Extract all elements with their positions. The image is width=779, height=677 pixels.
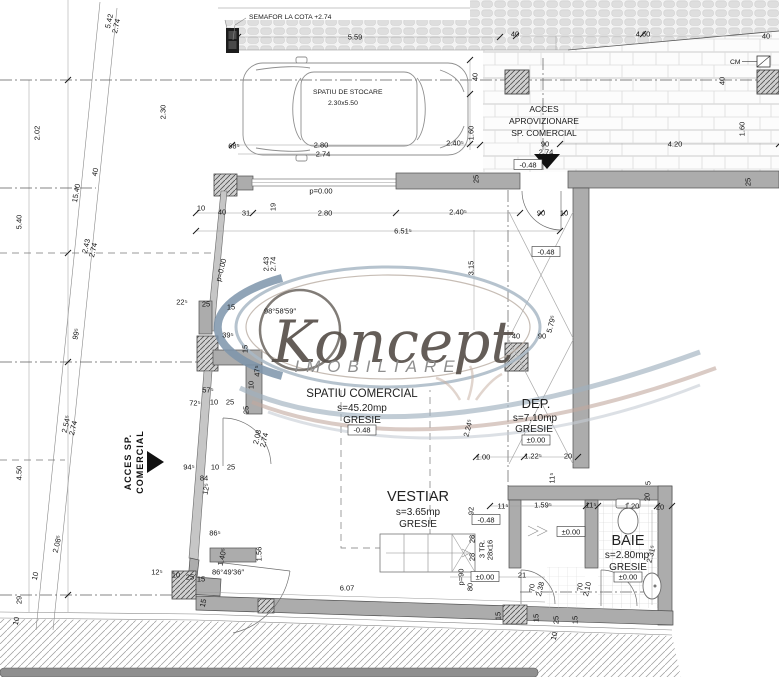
svg-text:25: 25 <box>744 178 753 186</box>
dimension-label: 20 <box>643 493 652 501</box>
svg-text:20: 20 <box>656 503 664 512</box>
dimension-label: 1.00 <box>476 453 491 462</box>
svg-text:20: 20 <box>643 493 652 501</box>
floor-plan-page: Koncept IMOBILIARE SPATIU COMERCIAL s=45… <box>0 0 779 677</box>
svg-text:94⁵: 94⁵ <box>183 463 194 472</box>
svg-text:25: 25 <box>202 300 210 309</box>
svg-text:12⁵: 12⁵ <box>151 568 162 577</box>
level-marker: -0.48 <box>514 160 542 170</box>
svg-text:11⁵: 11⁵ <box>586 501 597 510</box>
dimension-label: 1.60 <box>738 122 747 137</box>
svg-text:86°49′36″: 86°49′36″ <box>212 568 244 577</box>
svg-text:2.24⁵: 2.24⁵ <box>461 418 474 437</box>
svg-text:98°58′59″: 98°58′59″ <box>264 307 296 316</box>
baie-left-wall <box>585 500 598 568</box>
dimension-label: 10 <box>211 463 219 472</box>
dimension-label: 86°49′36″ <box>212 568 244 577</box>
dimension-label: 4.50 <box>15 466 24 481</box>
dimension-label: 10 <box>30 571 41 581</box>
dimension-label: 2.10 <box>581 581 593 597</box>
svg-text:-0.48: -0.48 <box>519 161 536 170</box>
svg-text:1.20: 1.20 <box>625 502 640 511</box>
supply-access-line1: ACCES <box>529 104 559 114</box>
room-name: BAIE <box>611 533 644 549</box>
svg-text:10: 10 <box>210 398 218 407</box>
room-finish: GRESIE <box>515 424 553 435</box>
svg-text:2.80: 2.80 <box>318 209 333 218</box>
dimension-label: 2.74 <box>316 150 331 159</box>
svg-text:25: 25 <box>552 616 561 624</box>
semafor-label: SEMAFOR LA COTA +2.74 <box>249 14 332 21</box>
floor-plan-drawing: Koncept IMOBILIARE SPATIU COMERCIAL s=45… <box>0 0 779 677</box>
room-area: s=7.10mp <box>513 413 558 424</box>
svg-text:10: 10 <box>197 204 205 213</box>
dimension-label: 15 <box>494 612 503 620</box>
svg-text:10: 10 <box>211 463 219 472</box>
road-band <box>0 668 538 677</box>
svg-text:25: 25 <box>242 406 251 414</box>
dimension-label: 5.40 <box>15 215 24 230</box>
dimension-label: 25 <box>472 175 481 183</box>
svg-text:57⁵: 57⁵ <box>202 386 213 395</box>
stairs <box>380 534 475 572</box>
dimension-label: 2.74 <box>269 257 278 272</box>
svg-text:47⁵: 47⁵ <box>253 365 262 376</box>
svg-text:92: 92 <box>467 507 476 515</box>
dimension-label: 99⁵ <box>70 327 81 340</box>
dimension-label: 25 <box>202 300 210 309</box>
svg-text:6.51⁵: 6.51⁵ <box>394 227 412 236</box>
svg-text:5.40: 5.40 <box>15 215 24 230</box>
svg-text:20: 20 <box>564 452 572 461</box>
level-marker: -0.48 <box>472 515 500 525</box>
dimension-label: 40 <box>718 77 727 85</box>
svg-text:10: 10 <box>30 571 41 581</box>
svg-text:12⁵: 12⁵ <box>200 482 211 495</box>
shop-access-annotation: ACCES SP. COMERCIAL <box>123 430 164 494</box>
paved-column-left <box>505 70 529 94</box>
svg-text:21: 21 <box>518 571 526 580</box>
slope-arrow <box>528 526 547 536</box>
svg-text:40: 40 <box>718 77 727 85</box>
watermark: Koncept IMOBILIARE <box>218 267 716 438</box>
dimension-label: 15 <box>532 614 541 622</box>
room-finish: GRESIE <box>399 519 437 530</box>
svg-text:25: 25 <box>226 398 234 407</box>
meter-label: CM <box>730 59 741 66</box>
dimension-label: 80 <box>466 583 475 591</box>
svg-text:2.74: 2.74 <box>87 242 99 258</box>
dimension-label: 15 <box>227 303 235 312</box>
dimension-label: 40 <box>218 208 226 217</box>
room-area: s=2.80mp <box>605 550 650 561</box>
dimension-label: 4.60 <box>636 30 651 39</box>
svg-text:15: 15 <box>197 575 205 584</box>
svg-text:-0.48: -0.48 <box>537 248 554 257</box>
svg-text:72⁵: 72⁵ <box>189 399 200 408</box>
svg-text:2.74: 2.74 <box>269 257 278 272</box>
svg-text:2.74: 2.74 <box>67 420 79 436</box>
dimension-label: 2.08⁵ <box>51 534 64 553</box>
bottom-wall-column-1 <box>258 599 274 613</box>
dimension-label: 2.80 <box>314 141 329 150</box>
svg-text:3.15: 3.15 <box>467 261 476 276</box>
dimension-label: 10 <box>172 571 180 580</box>
dimension-label: 4.20 <box>668 140 683 149</box>
dimension-label: 98°58′59″ <box>264 307 296 316</box>
svg-text:2.02: 2.02 <box>33 126 42 141</box>
svg-text:80: 80 <box>466 583 475 591</box>
dimension-label: 2.80 <box>318 209 333 218</box>
room-finish: GRESIE <box>343 415 381 426</box>
dimension-label: 2.02 <box>33 126 42 141</box>
dimension-label: 2.30 <box>159 105 168 120</box>
svg-text:2.10: 2.10 <box>581 581 593 597</box>
paved-column-right <box>757 70 779 94</box>
svg-text:84: 84 <box>200 474 208 483</box>
svg-text:p=90: p=90 <box>457 569 466 586</box>
dimension-label: 84 <box>200 474 208 483</box>
svg-text:15.40: 15.40 <box>70 183 82 203</box>
watermark-subtitle: IMOBILIARE <box>294 357 461 376</box>
svg-text:40: 40 <box>762 32 770 41</box>
svg-text:15: 15 <box>241 345 250 353</box>
dimension-label: 15 <box>197 575 205 584</box>
svg-text:2.40⁵: 2.40⁵ <box>449 208 467 217</box>
room-level: -0.48 <box>353 426 370 435</box>
dimension-label: 5.59 <box>348 33 363 42</box>
svg-text:90: 90 <box>537 209 545 218</box>
supply-access-line3: SP. COMERCIAL <box>511 128 577 138</box>
level-marker: -0.48 <box>532 247 560 257</box>
dimension-label: 2.74 <box>110 18 122 34</box>
svg-text:4.50: 4.50 <box>15 466 24 481</box>
corridor-wall-vertical <box>509 500 521 568</box>
svg-text:2.08⁵: 2.08⁵ <box>51 534 64 553</box>
svg-text:11⁵: 11⁵ <box>548 473 557 484</box>
dimension-label: 31 <box>242 209 250 218</box>
svg-text:p=0.00: p=0.00 <box>309 187 332 196</box>
svg-text:2.74: 2.74 <box>316 150 331 159</box>
svg-text:28: 28 <box>468 553 477 561</box>
level-marker: ±0.00 <box>557 527 585 537</box>
dimension-label: 86⁵ <box>209 529 220 538</box>
parked-car <box>243 57 468 161</box>
svg-text:40: 40 <box>512 332 520 341</box>
svg-text:2.80: 2.80 <box>314 141 329 150</box>
svg-text:15: 15 <box>227 303 235 312</box>
wall-stub-left <box>237 176 253 190</box>
svg-text:90: 90 <box>538 332 546 341</box>
dimension-label: 15.40 <box>70 183 82 203</box>
svg-text:40: 40 <box>511 30 519 39</box>
dimension-label: 1.59⁵ <box>534 501 552 510</box>
svg-text:11⁵: 11⁵ <box>498 502 509 511</box>
storage-title: SPATIU DE STOCARE <box>313 89 383 96</box>
svg-text:22⁵: 22⁵ <box>176 298 187 307</box>
dimension-label: p=0.00 <box>309 187 332 196</box>
svg-text:29: 29 <box>15 596 24 604</box>
dimension-label: 90 <box>538 332 546 341</box>
svg-text:5: 5 <box>644 481 653 485</box>
shop-access-arrow-icon <box>147 451 164 473</box>
svg-text:1.60: 1.60 <box>467 126 476 141</box>
dimension-label: 40 <box>90 167 101 177</box>
storefront-glazing <box>252 179 397 186</box>
shop-access-line2: COMERCIAL <box>135 430 145 494</box>
dimension-label: 2.40⁵ <box>449 208 467 217</box>
dimension-label: 11⁵ <box>586 501 597 510</box>
dimension-label: 1.60 <box>467 126 476 141</box>
dimension-label: 68⁵ <box>228 142 239 151</box>
svg-text:40: 40 <box>90 167 101 177</box>
svg-text:10: 10 <box>11 616 22 626</box>
svg-text:2.74: 2.74 <box>258 432 270 448</box>
dimension-label: 47⁵ <box>253 365 262 376</box>
dimension-label: 3.15 <box>467 261 476 276</box>
svg-text:±0.00: ±0.00 <box>476 573 495 582</box>
dimension-label: 1.20 <box>625 502 640 511</box>
dimension-label: 11⁵ <box>548 473 557 484</box>
dimension-label: 1.56 <box>255 547 264 562</box>
svg-text:31: 31 <box>242 209 250 218</box>
dimension-label: 5 <box>644 481 653 485</box>
dimension-label: 15 <box>241 345 250 353</box>
dimension-label: 21 <box>518 571 526 580</box>
dimension-label: 28 <box>468 553 477 561</box>
svg-text:2.30: 2.30 <box>159 105 168 120</box>
dimension-label: 25 <box>552 616 561 624</box>
dimension-label: 28 <box>468 535 477 543</box>
svg-text:15: 15 <box>494 612 503 620</box>
dimension-label: 2.24⁵ <box>461 418 474 437</box>
svg-text:4.20: 4.20 <box>668 140 683 149</box>
dimension-label: 10 <box>560 209 568 218</box>
svg-text:±0.00: ±0.00 <box>562 528 581 537</box>
room-level: ±0.00 <box>527 436 546 445</box>
dimension-label: 2.38 <box>534 581 546 597</box>
svg-text:5.59: 5.59 <box>348 33 363 42</box>
dimension-label: 25 <box>226 398 234 407</box>
svg-text:99⁵: 99⁵ <box>70 327 81 340</box>
dimension-label: 11⁵ <box>498 502 509 511</box>
dimension-label: 57⁵ <box>202 386 213 395</box>
dimension-label: 2.74 <box>87 242 99 258</box>
dimension-label: 6.07 <box>340 584 355 593</box>
right-wall <box>573 188 589 468</box>
dimension-label: 12⁵ <box>200 482 211 495</box>
room-finish: GRESIE <box>609 562 647 573</box>
svg-text:25: 25 <box>227 463 235 472</box>
room-name: DEP. <box>522 396 551 411</box>
dimension-label: 29 <box>15 596 24 604</box>
shop-access-line1: ACCES SP. <box>123 434 133 490</box>
svg-text:1.00: 1.00 <box>476 453 491 462</box>
dimension-label: 90 <box>537 209 545 218</box>
level-marker: ±0.00 <box>471 572 499 582</box>
dimension-label: 94⁵ <box>183 463 194 472</box>
room-area: s=45.20mp <box>337 403 387 414</box>
room-area: s=3.65mp <box>396 507 441 518</box>
svg-text:1.22⁵: 1.22⁵ <box>524 452 542 461</box>
svg-text:2.74: 2.74 <box>539 148 554 157</box>
svg-text:1.60: 1.60 <box>738 122 747 137</box>
dimension-label: 20 <box>656 503 664 512</box>
svg-text:1.56: 1.56 <box>255 547 264 562</box>
storage-annotation: SPATIU DE STOCARE 2.30x5.50 <box>313 89 383 107</box>
dimension-label: 2.74 <box>258 432 270 448</box>
svg-text:2.38: 2.38 <box>534 581 546 597</box>
dimension-label: 10 <box>11 616 22 626</box>
dimension-label: 1.22⁵ <box>524 452 542 461</box>
svg-text:10: 10 <box>247 381 256 389</box>
dimension-label: 2.74 <box>539 148 554 157</box>
dimension-label: 25 <box>242 406 251 414</box>
dimension-label: 2.74 <box>67 420 79 436</box>
dimension-label: 15 <box>571 616 580 624</box>
svg-text:25: 25 <box>186 573 194 582</box>
room-name: SPATIU COMERCIAL <box>306 388 418 400</box>
room-name: VESTIAR <box>387 489 449 505</box>
svg-text:10: 10 <box>560 209 568 218</box>
svg-text:6.07: 6.07 <box>340 584 355 593</box>
dimension-label: 6.51⁵ <box>394 227 412 236</box>
svg-text:39⁵: 39⁵ <box>222 331 233 340</box>
svg-text:2.40⁵: 2.40⁵ <box>446 139 464 148</box>
supply-access-line2: APROVIZIONARE <box>509 116 579 126</box>
svg-text:25: 25 <box>472 175 481 183</box>
dimension-label: 2.40⁵ <box>446 139 464 148</box>
dimension-label: 25 <box>227 463 235 472</box>
svg-text:5.79⁵: 5.79⁵ <box>544 314 557 333</box>
dimension-label: 39⁵ <box>222 331 233 340</box>
dimension-label: 92 <box>467 507 476 515</box>
storage-size: 2.30x5.50 <box>328 100 358 107</box>
dimension-label: 72⁵ <box>189 399 200 408</box>
dimension-label: 10 <box>197 204 205 213</box>
dimension-label: 5.79⁵ <box>544 314 557 333</box>
dimension-label: 10 <box>210 398 218 407</box>
svg-text:28: 28 <box>468 535 477 543</box>
svg-text:28x16: 28x16 <box>486 540 495 560</box>
svg-text:4.60: 4.60 <box>636 30 651 39</box>
dimension-label: 22⁵ <box>176 298 187 307</box>
svg-text:40: 40 <box>471 73 480 81</box>
svg-text:86⁵: 86⁵ <box>209 529 220 538</box>
dimension-label: 25 <box>186 573 194 582</box>
dimension-label: 19 <box>269 203 278 211</box>
bottom-wall-column-2 <box>503 605 527 624</box>
top-wall-mid <box>396 173 520 189</box>
dimension-label: p=90 <box>457 569 466 586</box>
dimension-label: 40 <box>512 332 520 341</box>
svg-text:-0.48: -0.48 <box>477 516 494 525</box>
dimension-label: 12⁵ <box>151 568 162 577</box>
svg-text:2.74: 2.74 <box>110 18 122 34</box>
dimension-label: 40 <box>762 32 770 41</box>
dimension-label: 28x16 <box>486 540 495 560</box>
svg-text:40: 40 <box>218 208 226 217</box>
dimension-label: 40 <box>511 30 519 39</box>
dimension-label: 40 <box>471 73 480 81</box>
svg-text:15: 15 <box>532 614 541 622</box>
svg-text:68⁵: 68⁵ <box>228 142 239 151</box>
svg-text:10: 10 <box>172 571 180 580</box>
dimension-label: 25 <box>744 178 753 186</box>
svg-text:1.59⁵: 1.59⁵ <box>534 501 552 510</box>
room-label-vestiar: VESTIAR s=3.65mp GRESIE <box>387 489 449 530</box>
room-level: ±0.00 <box>619 573 638 582</box>
dimension-label: 20 <box>564 452 572 461</box>
dimension-label: 10 <box>247 381 256 389</box>
svg-text:19: 19 <box>269 203 278 211</box>
paved-area <box>483 31 779 172</box>
svg-text:15: 15 <box>571 616 580 624</box>
